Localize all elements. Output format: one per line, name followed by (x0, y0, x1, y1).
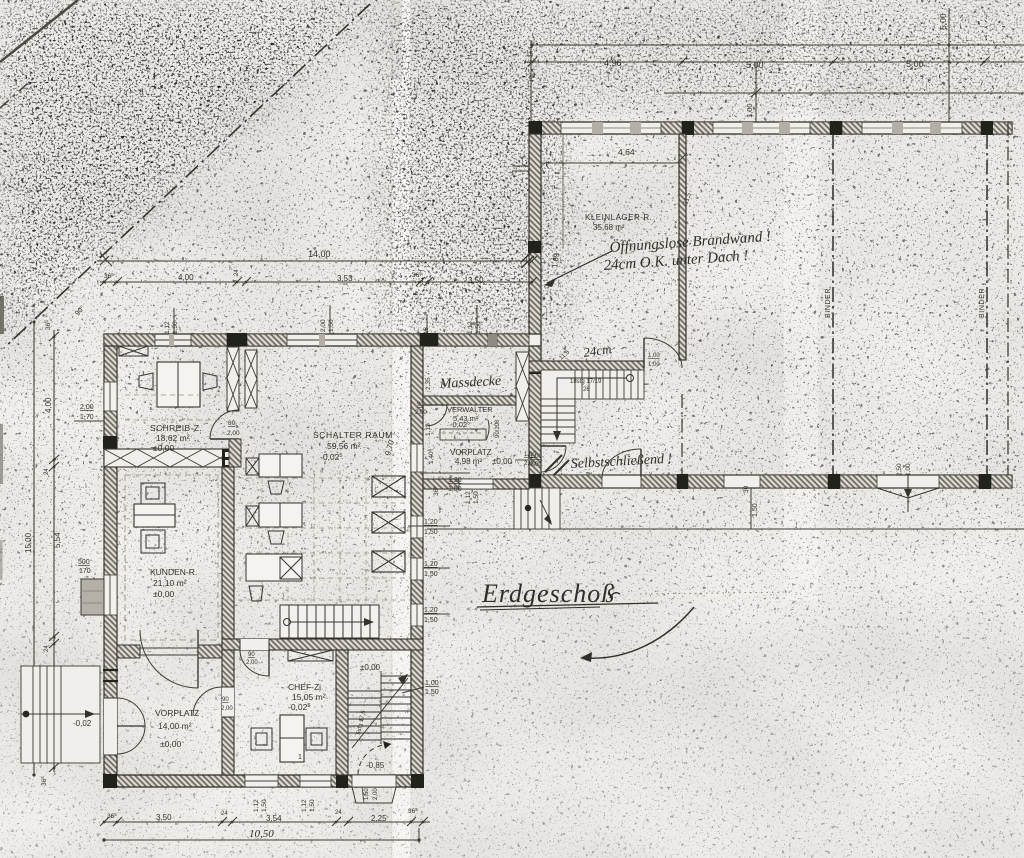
svg-text:2,50: 2,50 (896, 463, 903, 476)
svg-text:1,00: 1,00 (648, 353, 660, 359)
svg-text:1,12: 1,12 (425, 423, 432, 436)
svg-text:3,54: 3,54 (266, 814, 282, 823)
svg-text:1,70: 1,70 (80, 414, 94, 421)
svg-text:59,56 m²: 59,56 m² (327, 441, 361, 451)
svg-text:1,00: 1,00 (425, 680, 439, 687)
svg-text:-0,025: -0,025 (450, 420, 470, 429)
svg-text:14,00: 14,00 (308, 249, 331, 259)
svg-text:18stg 17/19: 18stg 17/19 (570, 379, 602, 385)
svg-text:1,20: 1,20 (424, 607, 438, 614)
svg-text:80: 80 (228, 420, 236, 427)
svg-text:1: 1 (298, 754, 302, 761)
svg-text:1,50: 1,50 (448, 486, 462, 493)
svg-text:-0,02: -0,02 (73, 719, 92, 728)
svg-text:4,98 m²: 4,98 m² (455, 457, 482, 466)
svg-text:30: 30 (743, 485, 750, 493)
svg-text:1,00: 1,00 (745, 103, 754, 118)
svg-text:90: 90 (248, 652, 255, 658)
svg-text:30: 30 (528, 73, 536, 80)
svg-text:1,00: 1,00 (648, 362, 660, 368)
svg-text:4,64: 4,64 (618, 147, 635, 157)
svg-text:15: 15 (424, 327, 430, 334)
svg-text:90: 90 (222, 697, 229, 703)
svg-text:4,00: 4,00 (44, 397, 53, 413)
svg-text:1,50: 1,50 (364, 788, 370, 800)
svg-text:1,50: 1,50 (261, 799, 268, 812)
svg-text:26: 26 (583, 387, 590, 393)
svg-text:1,00: 1,00 (530, 454, 542, 460)
svg-text:1,20: 1,20 (448, 477, 462, 484)
svg-text:1,12: 1,12 (301, 799, 308, 812)
svg-text:15,00: 15,00 (24, 532, 33, 553)
svg-text:2,00: 2,00 (530, 462, 542, 468)
svg-text:KUNDEN-R.: KUNDEN-R. (150, 567, 197, 577)
svg-text:±0,00: ±0,00 (360, 663, 381, 672)
svg-text:2,00: 2,00 (246, 660, 258, 666)
svg-text:3,53: 3,53 (337, 274, 353, 283)
svg-text:3,50: 3,50 (468, 276, 484, 285)
svg-text:10,50: 10,50 (249, 828, 274, 840)
svg-text:1,50: 1,50 (309, 799, 316, 812)
svg-text:1,50: 1,50 (473, 491, 480, 504)
svg-text:90/100: 90/100 (495, 419, 501, 438)
svg-text:5,54: 5,54 (53, 532, 62, 548)
svg-text:SCHREIB-Z.: SCHREIB-Z. (150, 423, 202, 433)
svg-text:1,50: 1,50 (424, 617, 438, 624)
svg-text:15: 15 (526, 51, 534, 58)
svg-text:±0,00: ±0,00 (153, 443, 174, 453)
svg-text:1,12: 1,12 (164, 321, 171, 334)
svg-text:1,20: 1,20 (424, 519, 438, 526)
svg-text:1,50: 1,50 (424, 529, 438, 536)
svg-text:SCHALTER RAUM: SCHALTER RAUM (313, 430, 393, 440)
svg-text:2,00: 2,00 (415, 410, 427, 416)
svg-text:15,05 m²: 15,05 m² (292, 692, 326, 702)
svg-text:2,00: 2,00 (373, 788, 379, 800)
svg-text:BINDER: BINDER (825, 288, 832, 318)
svg-text:2,00: 2,00 (221, 706, 233, 712)
svg-text:±0,00: ±0,00 (492, 457, 513, 466)
svg-text:4,96: 4,96 (604, 58, 622, 68)
svg-text:35,68 m²: 35,68 m² (593, 223, 625, 232)
svg-text:2,35: 2,35 (425, 377, 432, 390)
svg-text:1,50: 1,50 (424, 571, 438, 578)
svg-text:1,00: 1,00 (905, 463, 912, 476)
svg-text:1,20: 1,20 (424, 561, 438, 568)
svg-text:±0,00: ±0,00 (153, 589, 174, 599)
svg-text:-0,025: -0,025 (320, 452, 342, 462)
svg-text:4,00: 4,00 (178, 273, 194, 282)
svg-text:1,12: 1,12 (253, 799, 260, 812)
svg-text:VORPLATZ: VORPLATZ (450, 448, 492, 457)
svg-text:500: 500 (78, 559, 90, 566)
svg-text:BINDER: BINDER (979, 288, 986, 318)
svg-text:2,00: 2,00 (227, 430, 240, 437)
svg-text:18,62 m²: 18,62 m² (156, 433, 190, 443)
svg-text:±0,00: ±0,00 (160, 739, 181, 749)
svg-text:2,00: 2,00 (320, 319, 327, 332)
svg-text:VORPLATZ: VORPLATZ (155, 708, 199, 718)
svg-text:CHEF-Zi: CHEF-Zi (288, 682, 321, 692)
svg-text:90: 90 (417, 402, 424, 408)
svg-text:1,50: 1,50 (328, 319, 335, 332)
svg-text:24: 24 (234, 269, 240, 276)
svg-text:1,50: 1,50 (172, 321, 179, 334)
svg-text:-0,85: -0,85 (366, 761, 385, 770)
svg-text:1,12: 1,12 (467, 321, 474, 334)
svg-text:5,00: 5,00 (746, 60, 764, 70)
svg-text:170: 170 (79, 568, 91, 575)
svg-text:2,25: 2,25 (371, 814, 387, 823)
svg-text:KLEINLAGER-R.: KLEINLAGER-R. (585, 213, 652, 222)
svg-text:1,50: 1,50 (425, 689, 439, 696)
svg-text:1,50: 1,50 (475, 321, 482, 334)
svg-text:21,10 m²: 21,10 m² (153, 578, 187, 588)
svg-text:5,00: 5,00 (906, 59, 924, 69)
svg-text:24: 24 (44, 468, 50, 475)
svg-text:5,00: 5,00 (938, 13, 948, 30)
svg-text:3,50: 3,50 (156, 813, 172, 822)
svg-text:24: 24 (44, 645, 50, 652)
svg-text:Erdgeschoß: Erdgeschoß (481, 579, 615, 608)
svg-text:2,00: 2,00 (80, 404, 94, 411)
svg-text:1,12: 1,12 (465, 491, 472, 504)
svg-text:1,50: 1,50 (752, 503, 759, 517)
svg-text:14,00 m²: 14,00 m² (158, 721, 192, 731)
svg-text:24: 24 (221, 811, 228, 817)
svg-text:24: 24 (335, 810, 342, 816)
svg-text:-0,025: -0,025 (288, 702, 310, 712)
svg-text:VERWALTER: VERWALTER (447, 405, 493, 414)
